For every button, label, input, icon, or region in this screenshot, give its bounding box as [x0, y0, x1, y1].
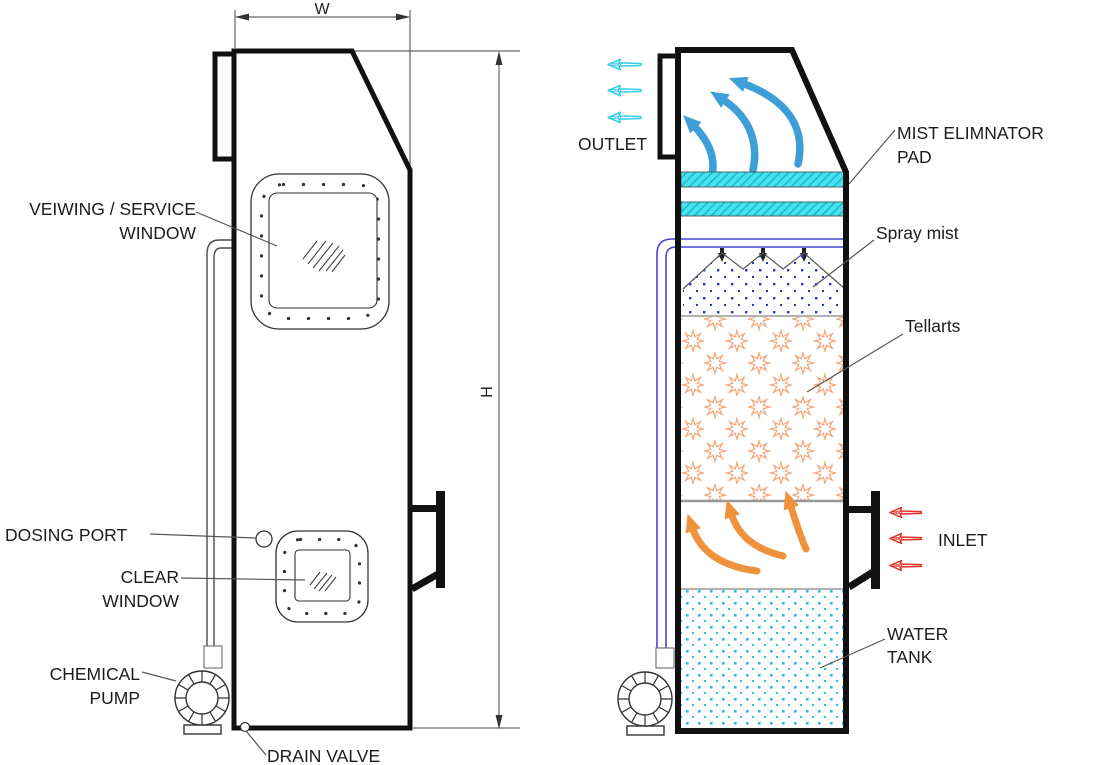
right-inlet-flange	[849, 491, 880, 589]
dim-height-label: H	[479, 386, 496, 398]
water-tank-label-1: WATER	[887, 624, 948, 644]
clear-window	[276, 531, 368, 622]
left-recirculation-pipe	[204, 240, 232, 668]
right-view: OUTLET	[578, 50, 1044, 735]
drain-valve	[241, 723, 250, 732]
outlet-label: OUTLET	[578, 134, 647, 154]
chemical-pump-label-1: CHEMICAL	[50, 664, 141, 684]
water-tank-region	[681, 590, 845, 730]
chemical-pump-label-2: PUMP	[89, 688, 140, 708]
inlet-arrow-icon	[890, 534, 922, 544]
water-tank-label-2: TANK	[887, 647, 933, 667]
inlet-flow-arrows	[890, 508, 922, 571]
mist-pad-label-2: PAD	[897, 147, 932, 167]
drain-valve-leader	[246, 731, 266, 755]
spray-mist-label: Spray mist	[876, 223, 959, 243]
left-tower-body	[234, 51, 410, 728]
outlet-arrow-icon	[608, 112, 641, 122]
tellarts-region	[681, 316, 845, 501]
right-recirculation-pump	[618, 672, 672, 735]
left-inlet-flange	[412, 491, 445, 589]
clear-window-label-2: WINDOW	[102, 591, 179, 611]
inlet-arrow-icon	[890, 508, 922, 518]
dim-width-label: W	[314, 1, 330, 18]
tellarts-label: Tellarts	[905, 316, 961, 336]
mist-pad-leader	[849, 130, 895, 184]
viewing-window-label-1: VEIWING / SERVICE	[29, 199, 196, 219]
mist-eliminator-pad-2	[681, 202, 845, 216]
outlet-arrow-icon	[608, 59, 641, 69]
dosing-port	[256, 531, 272, 547]
scrubber-technical-drawing: W H	[0, 0, 1099, 765]
viewing-service-window	[251, 174, 389, 329]
clear-window-label-1: CLEAR	[121, 567, 179, 587]
left-view: W H	[5, 1, 520, 765]
chemical-pump	[175, 671, 229, 734]
viewing-window-label-2: WINDOW	[119, 223, 196, 243]
inlet-arrow-icon	[890, 561, 922, 571]
dosing-port-label: DOSING PORT	[5, 525, 128, 545]
drawing-svg: W H	[0, 0, 1099, 765]
left-outlet-duct	[215, 54, 234, 159]
inlet-label: INLET	[938, 530, 988, 550]
mist-eliminator-pad-1	[681, 172, 845, 187]
outlet-flow-arrows	[608, 59, 641, 122]
drain-valve-label: DRAIN VALVE	[267, 746, 380, 765]
chemical-pump-leader	[142, 672, 176, 681]
mist-pad-label-1: MIST ELIMNATOR	[897, 123, 1044, 143]
outlet-arrow-icon	[608, 85, 641, 95]
